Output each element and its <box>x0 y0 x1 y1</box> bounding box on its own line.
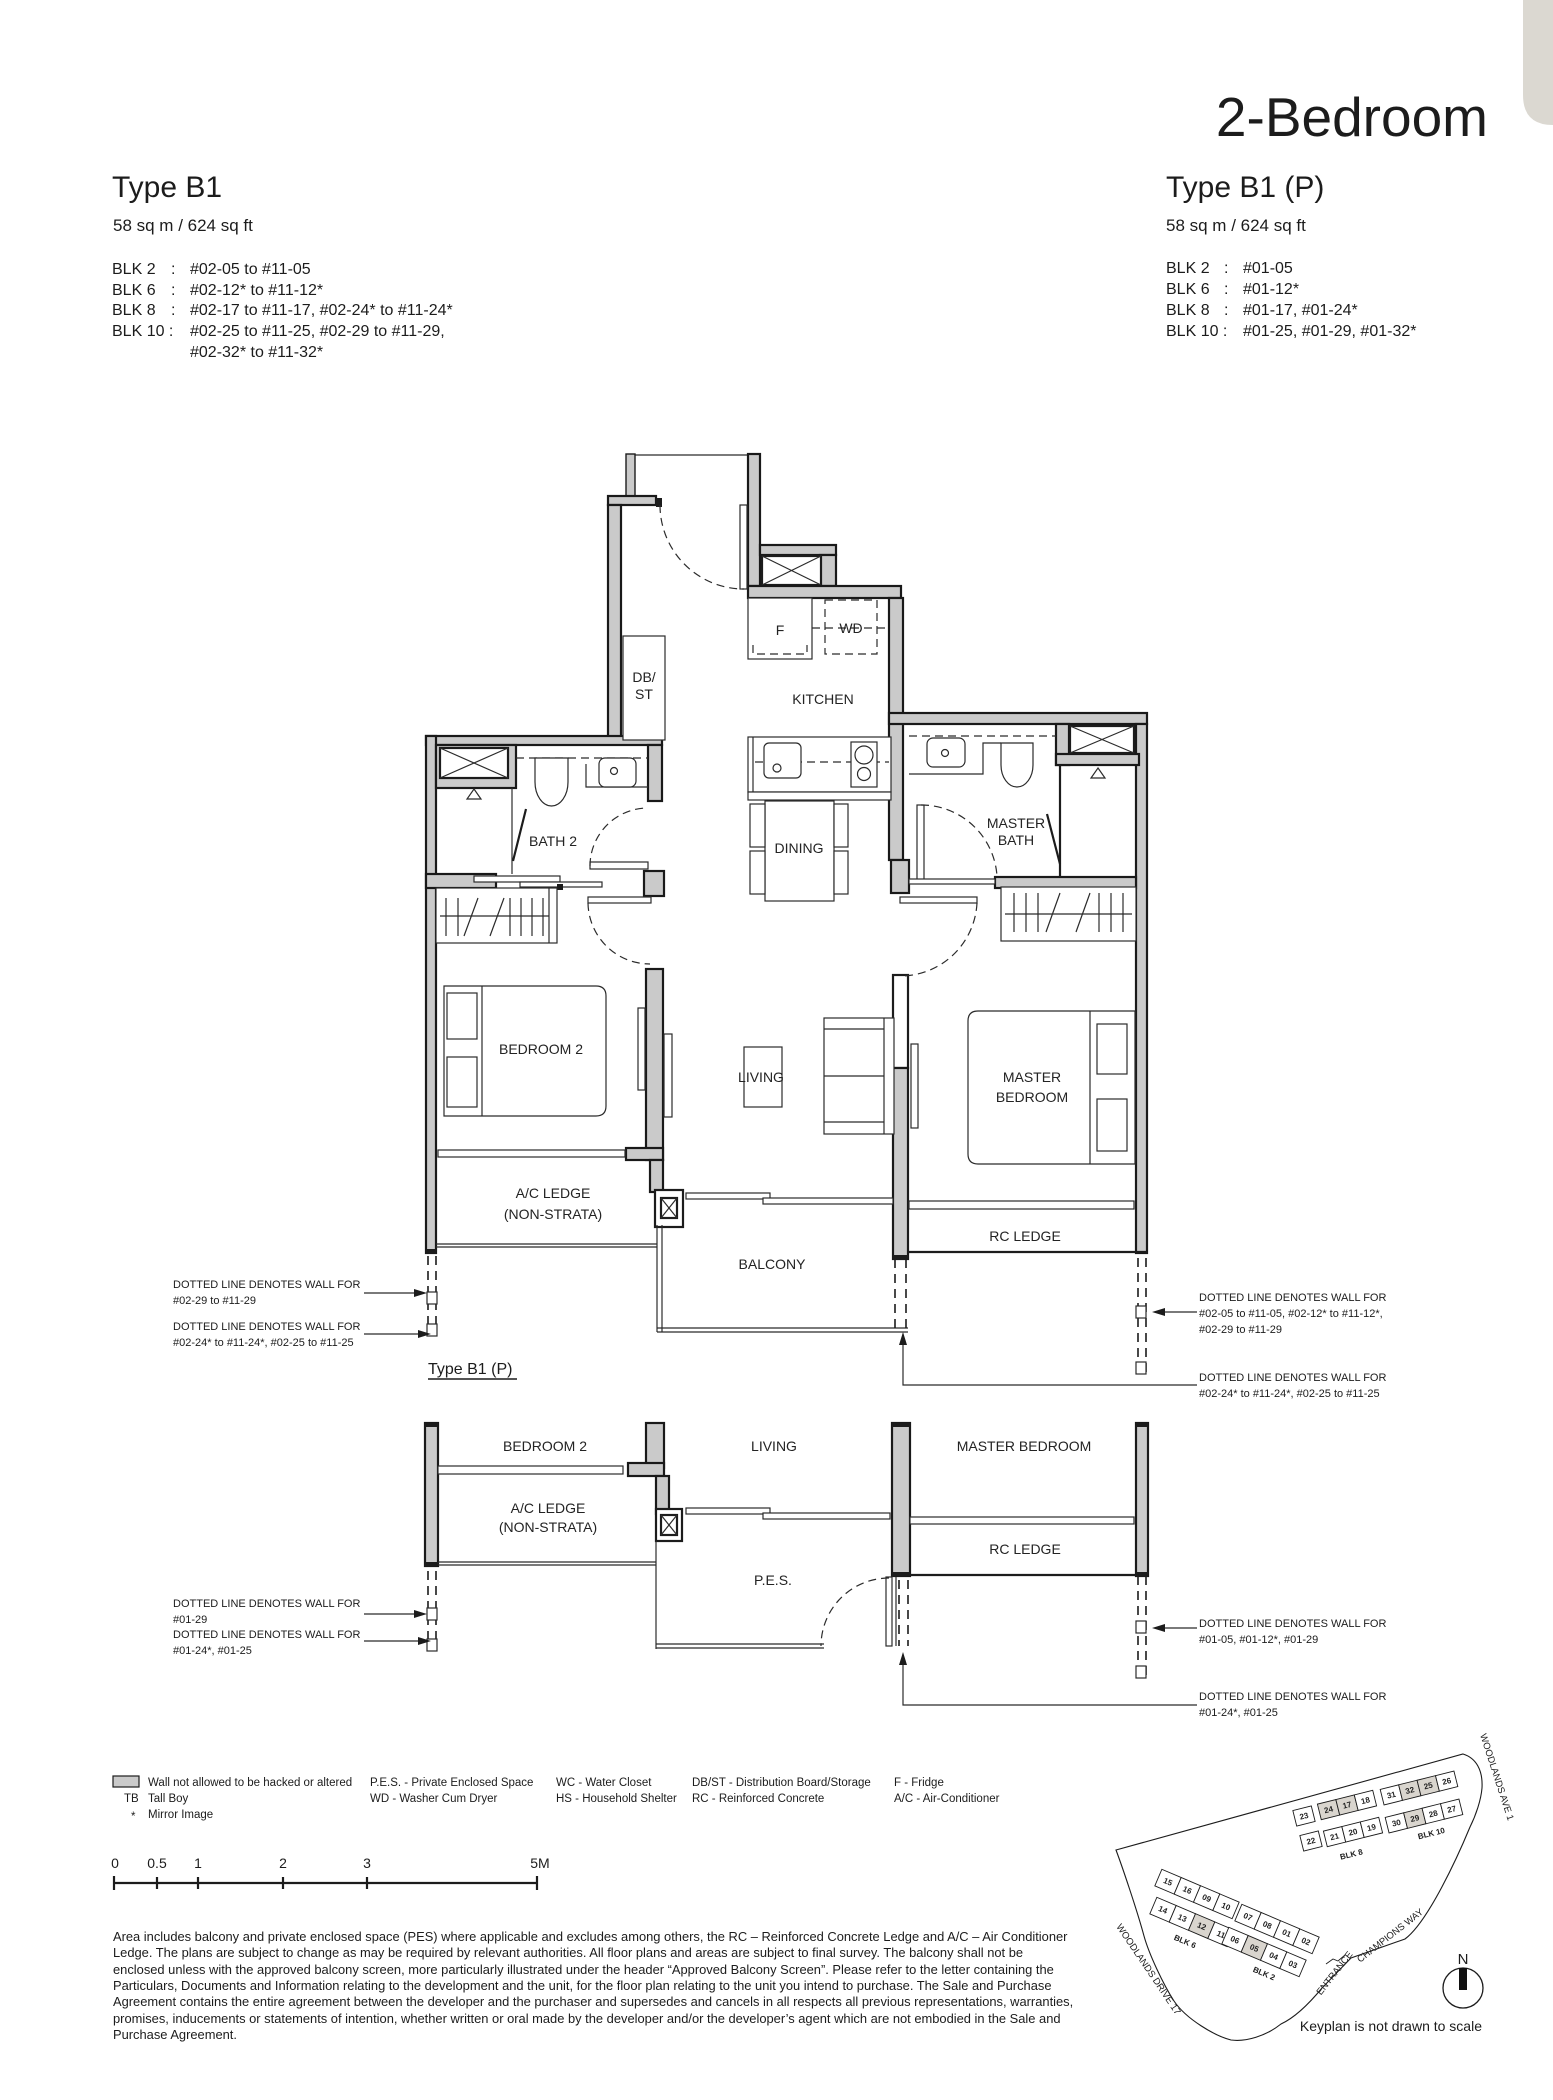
svg-text:Ledge. The plans are subject t: Ledge. The plans are subject to change a… <box>113 1945 1023 1960</box>
svg-text:#02-29 to #11-29: #02-29 to #11-29 <box>173 1295 256 1307</box>
svg-text:WD: WD <box>839 620 862 636</box>
svg-text:(NON-STRATA): (NON-STRATA) <box>504 1206 602 1222</box>
svg-text:BLK 6: BLK 6 <box>112 282 156 299</box>
svg-text:BLK 8: BLK 8 <box>112 302 156 319</box>
svg-text:DOTTED LINE DENOTES WALL FOR: DOTTED LINE DENOTES WALL FOR <box>173 1598 360 1610</box>
svg-text:enclosed unless with the appro: enclosed unless with the approved balcon… <box>113 1962 1054 1977</box>
svg-text:RC - Reinforced Concrete: RC - Reinforced Concrete <box>692 1793 824 1805</box>
svg-text::: : <box>171 261 175 278</box>
svg-text:promises, inducements or state: promises, inducements or statements of i… <box>113 2011 1061 2026</box>
svg-text:DOTTED LINE DENOTES WALL FOR: DOTTED LINE DENOTES WALL FOR <box>1199 1292 1386 1304</box>
svg-text:#02-05 to #11-05, #02-12* to #: #02-05 to #11-05, #02-12* to #11-12*, <box>1199 1308 1383 1320</box>
svg-text:N: N <box>1458 1951 1469 1968</box>
svg-text::: : <box>1224 281 1228 298</box>
svg-text:Mirror Image: Mirror Image <box>148 1809 213 1821</box>
svg-text::: : <box>1224 260 1228 277</box>
svg-text:5M: 5M <box>530 1855 549 1871</box>
svg-text:Tall Boy: Tall Boy <box>148 1793 189 1805</box>
svg-text:Agreement contains the entire: Agreement contains the entire agreement … <box>113 1994 1073 2009</box>
svg-text:#01-29: #01-29 <box>173 1614 207 1626</box>
svg-text:F: F <box>776 622 785 638</box>
svg-text:#02-24* to #11-24*, #02-25 to: #02-24* to #11-24*, #02-25 to #11-25 <box>173 1337 354 1349</box>
svg-text:#02-29 to #11-29: #02-29 to #11-29 <box>1199 1324 1282 1336</box>
svg-text:Purchase Agreement.: Purchase Agreement. <box>113 2027 237 2042</box>
svg-text:0: 0 <box>111 1855 119 1871</box>
svg-text:#02-17 to #11-17, #02-24* to #: #02-17 to #11-17, #02-24* to #11-24* <box>190 302 453 319</box>
svg-text:WC - Water Closet: WC - Water Closet <box>556 1777 652 1789</box>
svg-text:KITCHEN: KITCHEN <box>792 691 853 707</box>
svg-text:Type B1 (P): Type B1 (P) <box>1166 171 1324 204</box>
svg-text:TB: TB <box>124 1793 139 1805</box>
svg-text:58 sq m / 624 sq ft: 58 sq m / 624 sq ft <box>1166 216 1306 235</box>
svg-text:#01-05, #01-12*, #01-29: #01-05, #01-12*, #01-29 <box>1199 1634 1318 1646</box>
svg-text:Type B1: Type B1 <box>112 171 222 204</box>
svg-text:MASTER: MASTER <box>1003 1069 1061 1085</box>
svg-text::: : <box>171 282 175 299</box>
svg-text::: : <box>171 302 175 319</box>
svg-text:2: 2 <box>279 1855 287 1871</box>
svg-text:RC LEDGE: RC LEDGE <box>989 1228 1061 1244</box>
svg-text:BALCONY: BALCONY <box>739 1256 807 1272</box>
svg-text:A/C - Air-Conditioner: A/C - Air-Conditioner <box>894 1793 1000 1805</box>
svg-text:#02-32* to #11-32*: #02-32* to #11-32* <box>190 344 323 361</box>
svg-text:DOTTED LINE DENOTES WALL FOR: DOTTED LINE DENOTES WALL FOR <box>173 1279 360 1291</box>
svg-text:#02-12* to #11-12*: #02-12* to #11-12* <box>190 282 323 299</box>
svg-text:BLK 8: BLK 8 <box>1166 302 1210 319</box>
svg-text:BEDROOM 2: BEDROOM 2 <box>499 1041 583 1057</box>
svg-text:0.5: 0.5 <box>147 1855 167 1871</box>
svg-text:HS - Household Shelter: HS - Household Shelter <box>556 1793 677 1805</box>
svg-text:3: 3 <box>363 1855 371 1871</box>
svg-text:Keyplan is not drawn to scale: Keyplan is not drawn to scale <box>1300 2018 1482 2034</box>
svg-text:DOTTED LINE DENOTES WALL FOR: DOTTED LINE DENOTES WALL FOR <box>1199 1691 1386 1703</box>
svg-text:2-Bedroom: 2-Bedroom <box>1216 86 1488 148</box>
svg-text:WD - Washer Cum Dryer: WD - Washer Cum Dryer <box>370 1793 498 1805</box>
svg-text:Wall not allowed to be hacked: Wall not allowed to be hacked or altered <box>148 1777 352 1789</box>
svg-text:58 sq m / 624 sq ft: 58 sq m / 624 sq ft <box>113 216 253 235</box>
svg-text:DOTTED LINE DENOTES WALL FOR: DOTTED LINE DENOTES WALL FOR <box>1199 1618 1386 1630</box>
svg-text:#01-17, #01-24*: #01-17, #01-24* <box>1243 302 1358 319</box>
svg-text::: : <box>1224 302 1228 319</box>
svg-text:1: 1 <box>194 1855 202 1871</box>
svg-text:DOTTED LINE DENOTES WALL FOR: DOTTED LINE DENOTES WALL FOR <box>173 1321 360 1333</box>
svg-text:A/C LEDGE: A/C LEDGE <box>511 1500 586 1516</box>
svg-text:LIVING: LIVING <box>751 1438 797 1454</box>
svg-text:Particulars, Documents and Inf: Particulars, Documents and Information r… <box>113 1978 1052 1993</box>
svg-text:DOTTED LINE DENOTES WALL FOR: DOTTED LINE DENOTES WALL FOR <box>1199 1372 1386 1384</box>
svg-text:#02-05 to #11-05: #02-05 to #11-05 <box>190 261 311 278</box>
svg-text:DB/ST - Distribution Board/Sto: DB/ST - Distribution Board/Storage <box>692 1777 871 1789</box>
svg-text:MASTER BEDROOM: MASTER BEDROOM <box>957 1438 1092 1454</box>
svg-text:BLK 10 :: BLK 10 : <box>112 323 173 340</box>
svg-text:BLK 6: BLK 6 <box>1166 281 1210 298</box>
svg-text:#01-24*, #01-25: #01-24*, #01-25 <box>1199 1707 1278 1719</box>
svg-text:BEDROOM 2: BEDROOM 2 <box>503 1438 587 1454</box>
svg-text:BLK 10 :: BLK 10 : <box>1166 323 1227 340</box>
svg-text:*: * <box>131 1811 136 1823</box>
svg-text:DINING: DINING <box>775 840 824 856</box>
svg-text:#02-24* to #11-24*, #02-25 to: #02-24* to #11-24*, #02-25 to #11-25 <box>1199 1388 1380 1400</box>
svg-text:F - Fridge: F - Fridge <box>894 1777 944 1789</box>
svg-text:Area includes balcony and priv: Area includes balcony and private enclos… <box>113 1929 1068 1944</box>
svg-text:BEDROOM: BEDROOM <box>996 1089 1068 1105</box>
svg-text:LIVING: LIVING <box>738 1069 784 1085</box>
svg-text:P.E.S. - Private Enclosed Spac: P.E.S. - Private Enclosed Space <box>370 1777 533 1789</box>
svg-text:#01-25, #01-29, #01-32*: #01-25, #01-29, #01-32* <box>1243 323 1416 340</box>
svg-text:BLK 2: BLK 2 <box>112 261 156 278</box>
svg-text:DOTTED LINE DENOTES WALL FOR: DOTTED LINE DENOTES WALL FOR <box>173 1629 360 1641</box>
svg-text:ST: ST <box>635 686 653 702</box>
svg-text:#01-12*: #01-12* <box>1243 281 1299 298</box>
svg-text:BLK 2: BLK 2 <box>1166 260 1210 277</box>
svg-text:P.E.S.: P.E.S. <box>754 1572 792 1588</box>
svg-text:DB/: DB/ <box>632 669 655 685</box>
svg-text:(NON-STRATA): (NON-STRATA) <box>499 1519 597 1535</box>
svg-text:MASTER: MASTER <box>987 815 1045 831</box>
svg-text:Type B1 (P): Type B1 (P) <box>428 1361 512 1378</box>
svg-text:#02-25 to #11-25, #02-29 to #1: #02-25 to #11-25, #02-29 to #11-29, <box>190 323 445 340</box>
svg-text:BATH: BATH <box>998 832 1034 848</box>
svg-text:A/C LEDGE: A/C LEDGE <box>516 1185 591 1201</box>
svg-text:BATH 2: BATH 2 <box>529 833 577 849</box>
svg-text:#01-05: #01-05 <box>1243 260 1293 277</box>
svg-text:#01-24*, #01-25: #01-24*, #01-25 <box>173 1645 252 1657</box>
svg-text:RC LEDGE: RC LEDGE <box>989 1541 1061 1557</box>
